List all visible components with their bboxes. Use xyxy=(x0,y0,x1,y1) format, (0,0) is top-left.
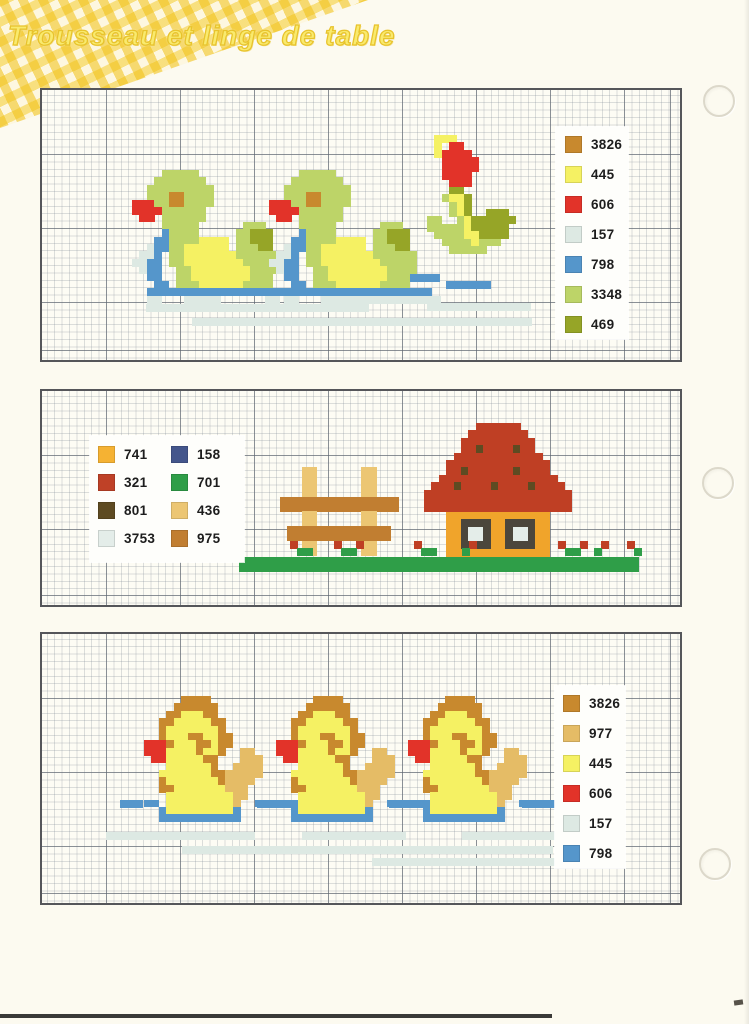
legend-row: 445 xyxy=(565,166,628,183)
legend-row: 3753 xyxy=(98,530,171,547)
thread-color-legend: 38264456061577983348469 xyxy=(556,127,628,339)
thread-code-label: 158 xyxy=(197,447,220,462)
color-swatch xyxy=(171,530,188,547)
legend-row: 606 xyxy=(565,196,628,213)
legend-row: 158 xyxy=(171,446,244,463)
thread-code-label: 975 xyxy=(197,531,220,546)
thread-code-label: 606 xyxy=(591,197,614,212)
legend-row: 606 xyxy=(563,785,625,802)
thread-code-label: 801 xyxy=(124,503,147,518)
punch-hole xyxy=(699,848,731,880)
thread-code-label: 798 xyxy=(591,257,614,272)
thread-code-label: 3753 xyxy=(124,531,155,546)
legend-row: 3826 xyxy=(565,136,628,153)
legend-row: 798 xyxy=(563,845,625,862)
punch-hole xyxy=(702,467,734,499)
water-pale xyxy=(182,846,553,854)
legend-row: 445 xyxy=(563,755,625,772)
color-swatch xyxy=(98,446,115,463)
color-swatch xyxy=(98,502,115,519)
color-swatch xyxy=(98,474,115,491)
color-swatch xyxy=(565,226,582,243)
thread-code-label: 3826 xyxy=(589,696,620,711)
water-pale xyxy=(472,318,532,326)
chart-panel-yellow-ducklings-border: 3826977445606157798 xyxy=(40,632,682,905)
legend-row: 741 xyxy=(98,446,171,463)
color-swatch xyxy=(171,474,188,491)
thread-code-label: 606 xyxy=(589,786,612,801)
legend-row: 3826 xyxy=(563,695,625,712)
punch-hole xyxy=(703,85,735,117)
legend-row: 801 xyxy=(98,502,171,519)
water-blue xyxy=(120,800,143,808)
legend-row: 321 xyxy=(98,474,171,491)
thread-color-legend: 7411583217018014363753975 xyxy=(90,436,244,562)
water-pale xyxy=(427,303,531,311)
thread-code-label: 321 xyxy=(124,475,147,490)
legend-row: 157 xyxy=(563,815,625,832)
water-pale xyxy=(302,832,406,840)
color-swatch xyxy=(563,815,580,832)
thread-code-label: 977 xyxy=(589,726,612,741)
page-title: Trousseau et linge de table xyxy=(8,20,395,52)
color-swatch xyxy=(565,316,582,333)
legend-row: 469 xyxy=(565,316,628,333)
thread-code-label: 157 xyxy=(591,227,614,242)
thread-code-label: 469 xyxy=(591,317,614,332)
thread-code-label: 436 xyxy=(197,503,220,518)
legend-row: 157 xyxy=(565,226,628,243)
thread-code-label: 701 xyxy=(197,475,220,490)
chart-panel-house-and-fence-border: 7411583217018014363753975 xyxy=(40,389,682,607)
legend-row: 3348 xyxy=(565,286,628,303)
color-swatch xyxy=(563,755,580,772)
color-swatch xyxy=(565,136,582,153)
thread-code-label: 157 xyxy=(589,816,612,831)
color-swatch xyxy=(98,530,115,547)
legend-row: 975 xyxy=(171,530,244,547)
color-swatch xyxy=(171,502,188,519)
color-swatch xyxy=(171,446,188,463)
page-edge-shadow xyxy=(744,0,749,1024)
scanned-pattern-page: Trousseau et linge de table 382644560615… xyxy=(0,0,749,1024)
water-pale xyxy=(146,304,369,312)
legend-row: 798 xyxy=(565,256,628,273)
thread-code-label: 3826 xyxy=(591,137,622,152)
color-swatch xyxy=(565,166,582,183)
thread-code-label: 445 xyxy=(589,756,612,771)
thread-code-label: 445 xyxy=(591,167,614,182)
scan-artifact-mark xyxy=(734,999,744,1005)
legend-row: 977 xyxy=(563,725,625,742)
color-swatch xyxy=(565,196,582,213)
legend-row: 436 xyxy=(171,502,244,519)
chart-panel-green-ducks-border: 38264456061577983348469 xyxy=(40,88,682,362)
water-pale xyxy=(106,832,255,840)
water-blue xyxy=(446,281,491,289)
page-bottom-rule xyxy=(0,1014,552,1018)
grass-band xyxy=(239,557,639,572)
color-swatch xyxy=(563,785,580,802)
legend-row: 701 xyxy=(171,474,244,491)
thread-code-label: 741 xyxy=(124,447,147,462)
color-swatch xyxy=(563,725,580,742)
color-swatch xyxy=(565,286,582,303)
thread-code-label: 3348 xyxy=(591,287,622,302)
thread-color-legend: 3826977445606157798 xyxy=(555,686,625,868)
color-swatch xyxy=(563,695,580,712)
color-swatch xyxy=(563,845,580,862)
color-swatch xyxy=(565,256,582,273)
water-pale xyxy=(192,318,489,326)
thread-code-label: 798 xyxy=(589,846,612,861)
